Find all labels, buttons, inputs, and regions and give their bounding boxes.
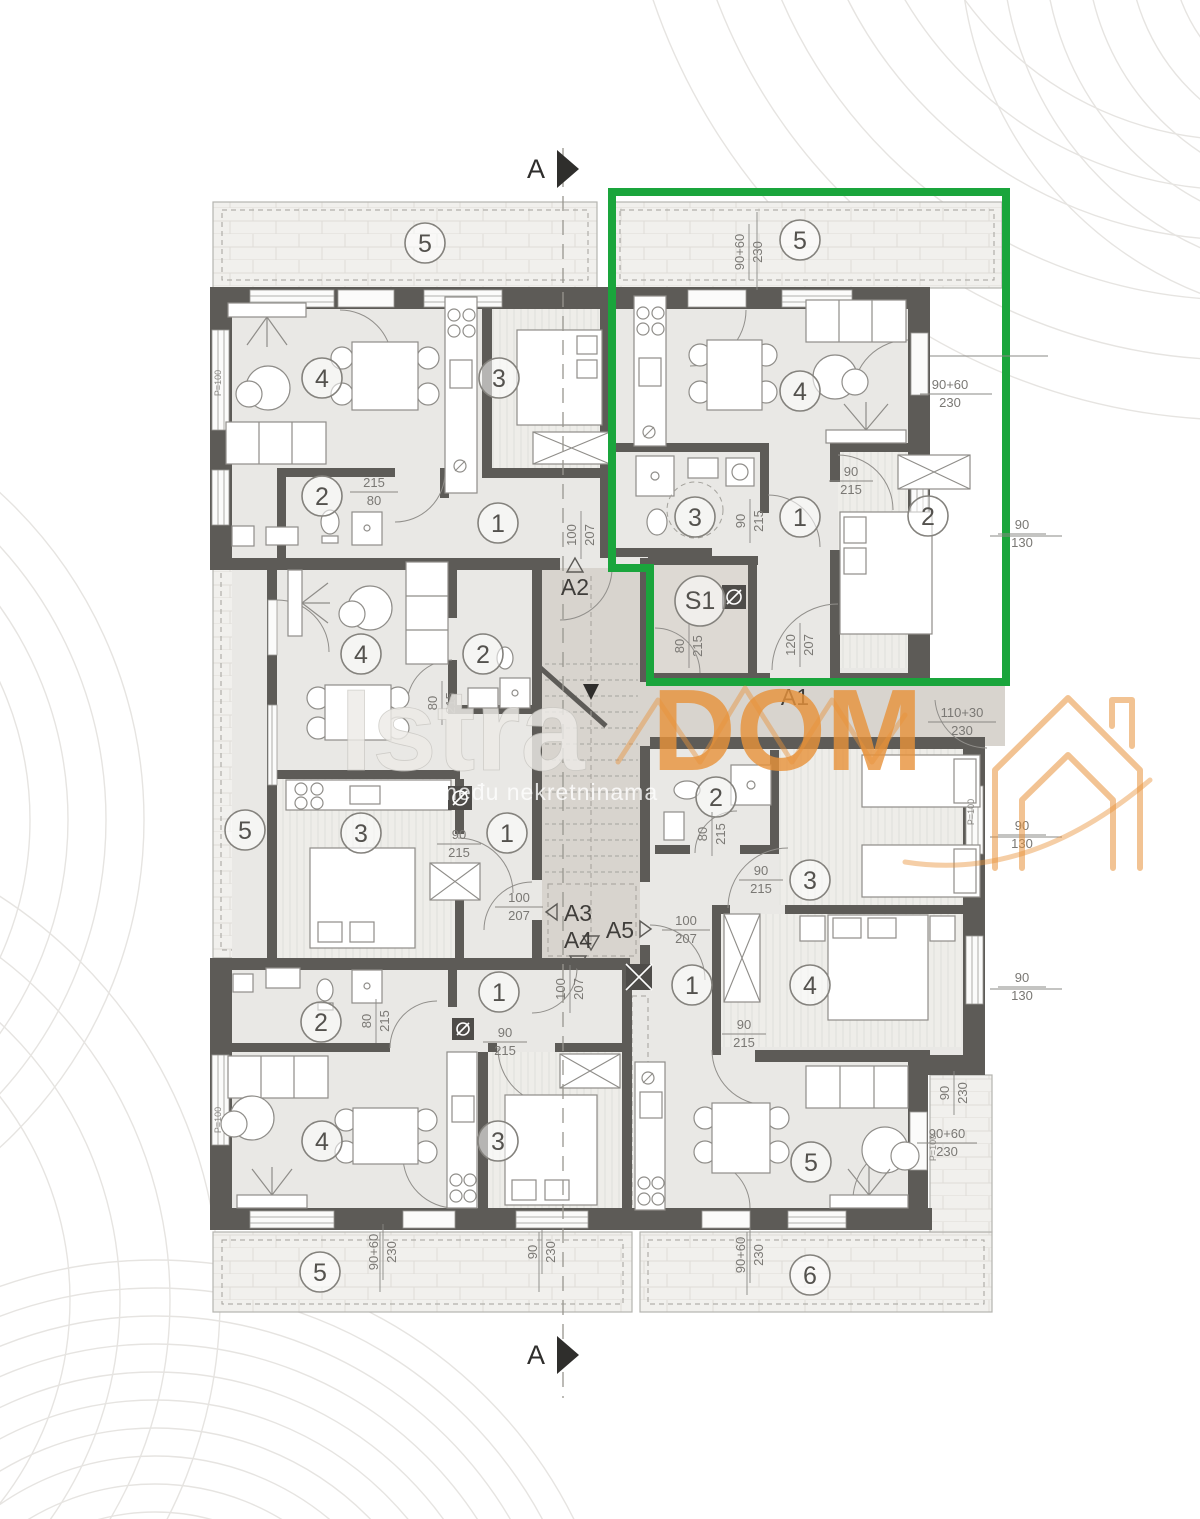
wardrobe [560,1054,620,1088]
svg-text:100: 100 [564,524,579,546]
svg-text:90+60: 90+60 [732,234,747,271]
window [212,470,229,525]
bed [862,845,980,897]
svg-text:1: 1 [500,820,514,848]
svg-text:90: 90 [737,1017,751,1032]
parapet-label: P=100 [928,1135,938,1161]
svg-text:3: 3 [688,504,702,532]
sofa [806,300,906,342]
svg-text:1: 1 [793,504,807,532]
svg-text:90+60: 90+60 [932,377,969,392]
kitchen [445,297,477,493]
kitchen [447,1052,477,1208]
svg-text:207: 207 [582,524,597,546]
svg-text:3: 3 [803,867,817,895]
door-opening [403,1211,455,1228]
svg-text:2: 2 [315,483,329,511]
svg-text:215: 215 [363,475,385,490]
svg-text:A5: A5 [606,917,634,943]
svg-text:1: 1 [492,979,506,1007]
svg-text:90: 90 [525,1245,540,1259]
svg-text:230: 230 [384,1241,399,1263]
svg-text:90: 90 [452,827,466,842]
room-number: 4 [790,965,830,1005]
bed [310,848,415,948]
svg-text:80: 80 [359,1014,374,1028]
window [250,1211,334,1228]
wardrobe [533,432,610,464]
svg-text:5: 5 [238,817,252,845]
svg-text:90: 90 [844,464,858,479]
svg-text:215: 215 [750,881,772,896]
terrace-number: 5 [300,1252,340,1292]
wardrobe [724,914,760,1002]
svg-text:3: 3 [492,365,506,393]
svg-text:3: 3 [491,1128,505,1156]
svg-text:1: 1 [685,972,699,1000]
svg-text:80: 80 [695,827,710,841]
svg-text:2: 2 [921,503,935,531]
svg-text:215: 215 [377,1010,392,1032]
door-opening [268,600,277,655]
svg-text:230: 230 [936,1144,958,1159]
sofa [806,1066,908,1108]
dimension: 90130 [998,970,1046,1003]
terrace-number: 5 [225,810,265,850]
bed [505,1095,597,1205]
svg-text:130: 130 [1011,988,1033,1003]
svg-text:A: A [527,154,545,184]
svg-text:1: 1 [491,510,505,538]
room-number: 3 [790,860,830,900]
shaft-icon [722,585,746,609]
svg-text:90: 90 [937,1086,952,1100]
svg-text:A3: A3 [564,900,592,926]
watermark-brand-accent: DOM [652,665,923,795]
svg-text:90: 90 [754,863,768,878]
svg-text:90: 90 [1015,970,1029,985]
room-number: 4 [302,1121,342,1161]
wardrobe [898,455,970,489]
svg-text:A2: A2 [561,574,589,600]
sofa [226,422,326,464]
svg-text:230: 230 [543,1241,558,1263]
svg-text:A4: A4 [564,927,592,953]
svg-text:90: 90 [1015,517,1029,532]
svg-text:215: 215 [448,845,470,860]
dimension: 90+60230 [920,377,992,410]
storage-label: S1 [675,576,725,626]
terrace-number: 5 [405,223,445,263]
door-opening [911,333,928,395]
kitchen [634,296,666,446]
svg-text:215: 215 [840,482,862,497]
svg-text:4: 4 [315,1128,329,1156]
svg-text:100: 100 [553,978,568,1000]
room-number: 3 [479,358,519,398]
room-number: 1 [478,503,518,543]
room-number: 2 [301,1002,341,1042]
svg-text:215: 215 [713,823,728,845]
svg-text:5: 5 [313,1259,327,1287]
svg-text:90: 90 [498,1025,512,1040]
watermark-brand-light: Istra [340,665,587,795]
svg-text:230: 230 [951,723,973,738]
svg-text:2: 2 [314,1009,328,1037]
svg-text:110+30: 110+30 [941,705,984,720]
door-opening [702,1211,750,1228]
svg-text:120: 120 [783,634,798,656]
floor-plan-page: 4 3 2 1 4 3 1 2 S1 4 2 3 1 2 3 1 4 2 1 4… [0,0,1200,1519]
svg-text:3: 3 [354,820,368,848]
section-marker-bottom: A [527,1336,579,1374]
svg-text:90: 90 [733,514,748,528]
svg-text:90+60: 90+60 [733,1237,748,1274]
svg-text:4: 4 [315,365,329,393]
svg-text:5: 5 [804,1149,818,1177]
door-opening [688,290,746,307]
svg-text:207: 207 [571,978,586,1000]
parapet-label: P=100 [966,799,976,825]
room-number: 1 [487,813,527,853]
room-number: 3 [675,497,715,537]
window [516,1211,588,1228]
svg-text:90+60: 90+60 [366,1234,381,1271]
room-number: 4 [302,358,342,398]
svg-text:4: 4 [793,378,807,406]
bed [517,330,602,425]
terrace-bottom-left [213,1232,632,1312]
svg-text:207: 207 [675,931,697,946]
wardrobe [430,863,480,900]
sofa [228,1056,328,1098]
room-number: 1 [479,972,519,1012]
terrace-number: 6 [790,1255,830,1295]
room-number: 3 [478,1121,518,1161]
svg-text:215: 215 [751,510,766,532]
svg-text:130: 130 [1011,535,1033,550]
svg-text:4: 4 [803,972,817,1000]
terrace-number: 5 [780,220,820,260]
floor-plan-canvas: 4 3 2 1 4 3 1 2 S1 4 2 3 1 2 3 1 4 2 1 4… [0,0,1200,1519]
svg-text:230: 230 [751,1244,766,1266]
room-number: 2 [302,476,342,516]
watermark-tagline: među nekretninama [438,779,658,805]
sofa [406,562,448,664]
room-number: 1 [780,497,820,537]
svg-text:230: 230 [939,395,961,410]
room-number: 2 [908,496,948,536]
window [268,705,277,785]
room-number: 5 [791,1142,831,1182]
door-opening [338,290,394,307]
svg-text:215: 215 [494,1043,516,1058]
section-marker-top: A [527,150,579,188]
window [788,1211,846,1228]
svg-text:215: 215 [690,635,705,657]
svg-text:230: 230 [955,1082,970,1104]
parapet-label: P=100 [213,370,223,396]
room-number: 3 [341,813,381,853]
svg-text:5: 5 [793,227,807,255]
svg-text:S1: S1 [685,587,716,615]
svg-text:230: 230 [750,241,765,263]
svg-text:100: 100 [675,913,697,928]
svg-text:A: A [527,1340,545,1370]
svg-text:6: 6 [803,1262,817,1290]
svg-text:215: 215 [733,1035,755,1050]
svg-text:100: 100 [508,890,530,905]
svg-text:80: 80 [367,493,381,508]
room-number: 4 [780,371,820,411]
room-number: 1 [672,965,712,1005]
window [966,936,983,1004]
svg-text:207: 207 [801,634,816,656]
svg-text:5: 5 [418,230,432,258]
svg-text:80: 80 [672,639,687,653]
parapet-label: P=100 [213,1107,223,1133]
shaft-icon [452,1018,474,1040]
svg-text:207: 207 [508,908,530,923]
shaft-icon [626,964,652,990]
